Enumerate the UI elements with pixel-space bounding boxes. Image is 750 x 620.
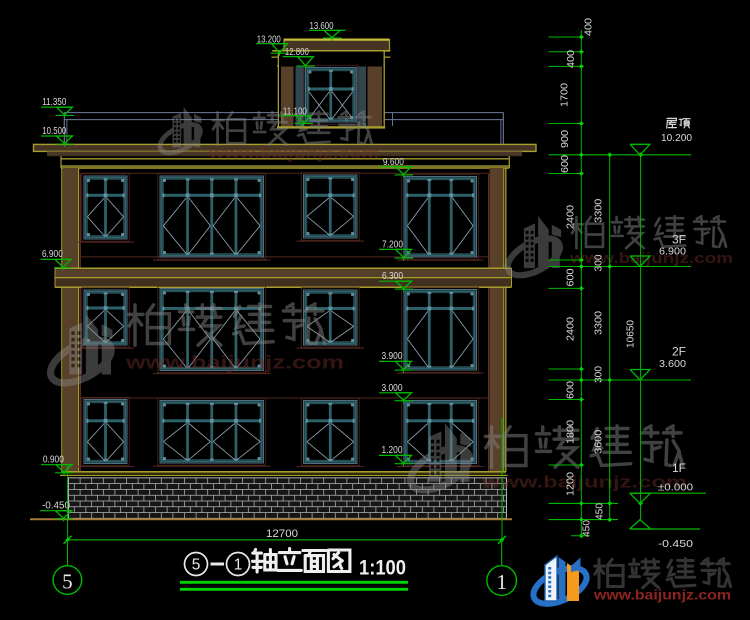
svg-text:6.900: 6.900: [42, 249, 63, 260]
svg-text:10650: 10650: [626, 320, 637, 348]
svg-text:450: 450: [582, 520, 593, 537]
svg-text:±0.000: ±0.000: [658, 481, 693, 493]
svg-text:www.baijunjz.com: www.baijunjz.com: [593, 588, 731, 603]
svg-text:1: 1: [496, 570, 507, 594]
svg-text:1.200: 1.200: [382, 445, 403, 456]
svg-text:www.baijunjz.com: www.baijunjz.com: [481, 473, 687, 492]
svg-text:2400: 2400: [566, 205, 577, 229]
svg-text:3.600: 3.600: [659, 358, 686, 370]
svg-text:3300: 3300: [594, 311, 605, 335]
svg-text:300: 300: [594, 254, 605, 271]
svg-text:600: 600: [566, 268, 577, 286]
svg-text:7.200: 7.200: [382, 239, 403, 250]
svg-text:1: 1: [234, 557, 243, 574]
svg-text:1800: 1800: [566, 420, 577, 444]
svg-text:www.baijunjz.com: www.baijunjz.com: [208, 144, 379, 163]
svg-text:1200: 1200: [566, 472, 577, 496]
svg-text:900: 900: [560, 130, 571, 148]
svg-text:600: 600: [560, 155, 571, 173]
svg-text:5: 5: [62, 570, 73, 594]
svg-text:400: 400: [584, 18, 595, 36]
svg-text:300: 300: [594, 366, 605, 383]
svg-text:0.900: 0.900: [43, 455, 64, 466]
svg-text:-0.450: -0.450: [42, 501, 70, 512]
svg-text:600: 600: [566, 381, 577, 399]
svg-text:1:100: 1:100: [359, 556, 406, 580]
svg-text:3600: 3600: [594, 429, 605, 453]
svg-text:3.900: 3.900: [382, 351, 403, 362]
svg-text:3300: 3300: [594, 198, 605, 222]
svg-text:2F: 2F: [672, 345, 686, 359]
svg-text:www.baijunjz.com: www.baijunjz.com: [125, 353, 344, 373]
svg-text:10.200: 10.200: [661, 132, 692, 144]
svg-text:400: 400: [566, 50, 577, 68]
svg-text:450: 450: [595, 503, 606, 520]
svg-text:1F: 1F: [672, 461, 686, 475]
svg-text:-0.450: -0.450: [658, 538, 693, 550]
svg-text:6.900: 6.900: [659, 245, 686, 257]
svg-text:2400: 2400: [566, 317, 577, 341]
svg-text:12700: 12700: [266, 528, 298, 540]
svg-text:1700: 1700: [560, 83, 571, 107]
svg-text:5: 5: [192, 557, 201, 574]
